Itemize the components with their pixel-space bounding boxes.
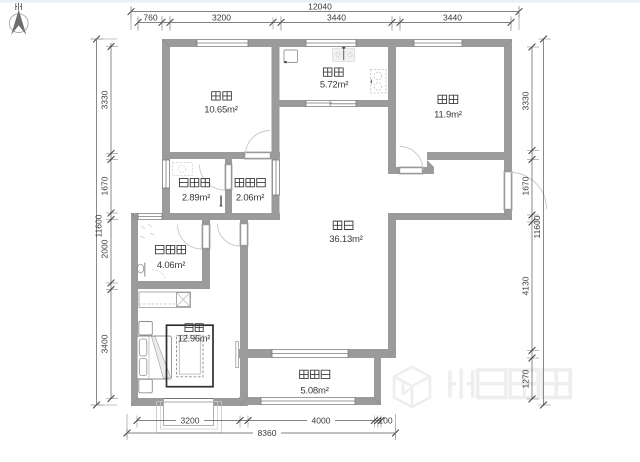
svg-text:100: 100 <box>378 416 392 426</box>
svg-text:11600: 11600 <box>94 214 104 237</box>
svg-text:11.9m²: 11.9m² <box>434 110 462 121</box>
svg-text:4130: 4130 <box>520 276 530 295</box>
svg-text:12040: 12040 <box>308 2 332 12</box>
svg-text:11600: 11600 <box>532 215 542 238</box>
svg-text:3200: 3200 <box>212 12 231 22</box>
svg-text:3330: 3330 <box>99 90 109 109</box>
svg-text:1270: 1270 <box>520 369 530 388</box>
svg-text:2.06m²: 2.06m² <box>236 193 264 204</box>
svg-text:3440: 3440 <box>443 12 462 22</box>
svg-text:10.65m²: 10.65m² <box>204 105 237 116</box>
svg-text:3200: 3200 <box>181 416 200 426</box>
svg-text:3400: 3400 <box>99 334 109 353</box>
svg-text:12.96m²: 12.96m² <box>178 334 210 344</box>
svg-text:5.72m²: 5.72m² <box>320 80 348 91</box>
svg-text:1670: 1670 <box>99 176 109 195</box>
svg-text:4.06m²: 4.06m² <box>157 260 185 271</box>
svg-text:3440: 3440 <box>327 12 346 22</box>
svg-text:5.08m²: 5.08m² <box>300 386 328 397</box>
svg-text:1670: 1670 <box>520 176 530 195</box>
svg-text:3330: 3330 <box>520 91 530 110</box>
svg-text:4000: 4000 <box>312 416 331 426</box>
svg-text:8360: 8360 <box>258 428 277 438</box>
svg-text:2.89m²: 2.89m² <box>182 193 210 204</box>
svg-text:760: 760 <box>143 12 157 22</box>
svg-text:2000: 2000 <box>99 239 109 258</box>
svg-text:36.13m²: 36.13m² <box>329 234 362 245</box>
